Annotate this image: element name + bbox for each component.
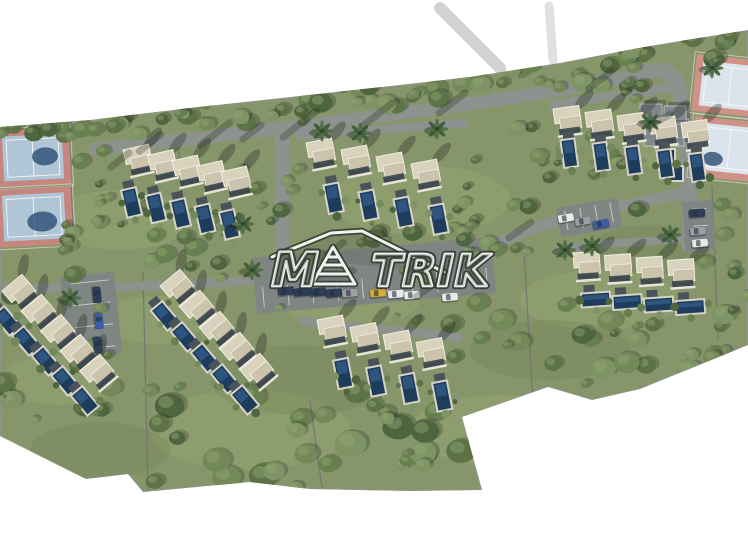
tree-highlight: [101, 108, 111, 116]
tree-canopy: [330, 74, 353, 93]
palm-crown: [435, 127, 439, 131]
tree-highlight: [64, 238, 69, 242]
tree-highlight: [54, 109, 63, 116]
tree-highlight: [151, 417, 161, 425]
car-windshield: [346, 290, 351, 296]
tree: [330, 72, 357, 93]
tree-highlight: [159, 396, 174, 408]
tree-highlight: [200, 96, 208, 103]
car: [325, 288, 343, 299]
tree-highlight: [631, 96, 636, 100]
tree-highlight: [96, 201, 100, 204]
tree-highlight: [574, 75, 585, 84]
tree: [717, 369, 736, 384]
tree-highlight: [201, 119, 209, 125]
car-windshield: [95, 341, 101, 346]
palm-crown: [668, 233, 672, 237]
tree-highlight: [448, 352, 456, 358]
pool-water-highlight: [627, 148, 638, 161]
tree-highlight: [532, 151, 541, 158]
tree-highlight: [59, 247, 65, 252]
tree-highlight: [175, 111, 180, 115]
tree-highlight: [728, 262, 734, 267]
tree-highlight: [333, 76, 344, 85]
car-windshield: [330, 290, 335, 296]
tree-shadow: [190, 94, 208, 107]
site-plan-rendering: M M TRIK TRIK: [0, 0, 748, 540]
tree-highlight: [628, 64, 635, 69]
tree-highlight: [630, 203, 639, 210]
tree-highlight: [267, 112, 273, 117]
grass-patch: [30, 422, 170, 478]
tree-highlight: [368, 401, 376, 407]
tree-highlight: [679, 362, 692, 372]
tree: [52, 106, 74, 123]
car-windshield: [96, 317, 102, 322]
car-windshield: [696, 240, 701, 246]
tree-highlight: [157, 115, 164, 120]
car: [691, 238, 709, 249]
tree-highlight: [290, 483, 297, 489]
logo-text: M M TRIK TRIK: [265, 243, 495, 297]
tree-highlight: [7, 121, 15, 128]
tree-highlight: [455, 77, 466, 86]
tree-highlight: [681, 32, 689, 38]
tree-highlight: [287, 187, 293, 192]
tree-highlight: [458, 235, 466, 241]
tree-highlight: [105, 194, 111, 198]
tree-highlight: [469, 296, 480, 305]
offsite-road-top: [549, 6, 553, 60]
tree-highlight: [729, 307, 734, 311]
tree-highlight: [686, 350, 693, 356]
tree-highlight: [148, 476, 157, 483]
tree-highlight: [508, 201, 515, 207]
tree-highlight: [276, 305, 280, 308]
tree-highlight: [554, 160, 558, 163]
tree-highlight: [133, 129, 141, 135]
tree-highlight: [473, 78, 483, 86]
tree-highlight: [594, 360, 607, 370]
tree-highlight: [582, 381, 587, 385]
tree-highlight: [171, 433, 179, 440]
tree-highlight: [625, 78, 630, 82]
tree-highlight: [403, 451, 408, 455]
tree-highlight: [275, 205, 284, 212]
pool-water-highlight: [563, 141, 574, 154]
tree-canopy: [680, 402, 688, 409]
tree-highlight: [297, 446, 309, 455]
tree-canopy: [625, 32, 641, 45]
tree: [340, 79, 354, 90]
tree-highlight: [89, 125, 97, 131]
tree-highlight: [26, 128, 33, 134]
tree-highlight: [409, 90, 415, 94]
tree: [625, 30, 644, 45]
tree-highlight: [149, 230, 157, 237]
tree-canopy: [523, 58, 541, 73]
car-windshield: [693, 210, 698, 216]
tree: [344, 79, 359, 91]
car-windshield: [94, 291, 100, 296]
tree-highlight: [647, 319, 655, 325]
tree-highlight: [96, 182, 100, 185]
tree-highlight: [589, 170, 595, 175]
tree-highlight: [431, 92, 442, 101]
tree-canopy: [344, 81, 356, 91]
tree-highlight: [108, 121, 117, 128]
tree-highlight: [724, 210, 733, 217]
tree-highlight: [629, 333, 639, 341]
tree-highlight: [554, 83, 561, 88]
tree-shadow: [343, 79, 354, 88]
tree-highlight: [417, 460, 425, 466]
tree-highlight: [636, 81, 644, 87]
tree-highlight: [535, 78, 540, 82]
palm-crown: [590, 244, 594, 248]
tree-shadow: [333, 72, 357, 90]
tree-highlight: [74, 123, 84, 131]
palm-crown: [241, 222, 245, 226]
tree-highlight: [544, 173, 551, 179]
tree-highlight: [603, 59, 613, 67]
tree-highlight: [361, 80, 371, 88]
tree-highlight: [293, 411, 304, 420]
tree: [680, 400, 691, 409]
tree-highlight: [206, 451, 220, 462]
tree-highlight: [258, 204, 262, 207]
tree-highlight: [625, 43, 635, 51]
tree-highlight: [498, 79, 504, 84]
tree-highlight: [472, 157, 477, 161]
tree-highlight: [338, 433, 354, 446]
tree-highlight: [346, 82, 352, 87]
tree-highlight: [715, 307, 726, 316]
car: [92, 336, 103, 354]
tree-highlight: [681, 403, 685, 406]
palm-crown: [320, 129, 324, 133]
tree-highlight: [687, 35, 696, 42]
tree-highlight: [466, 222, 472, 227]
tree-highlight: [627, 33, 635, 39]
pool-water-highlight: [595, 145, 606, 158]
tree-highlight: [382, 414, 389, 420]
tree-canopy: [472, 69, 484, 79]
tree-highlight: [341, 82, 346, 86]
car: [91, 286, 102, 304]
tree-highlight: [473, 57, 480, 63]
palm-crown: [358, 131, 362, 135]
tree-highlight: [266, 464, 277, 473]
tree-highlight: [458, 198, 465, 204]
pool-water-highlight: [691, 155, 702, 168]
tree-highlight: [316, 409, 325, 417]
tree-highlight: [30, 417, 35, 421]
tree-highlight: [74, 156, 83, 163]
tree-highlight: [301, 94, 310, 102]
tree-highlight: [98, 147, 105, 152]
tree-highlight: [705, 352, 714, 359]
tree-highlight: [481, 238, 490, 245]
tree-highlight: [450, 442, 465, 454]
tree-highlight: [559, 300, 567, 306]
tree-canopy: [359, 79, 379, 95]
tree-highlight: [42, 123, 51, 130]
tree-highlight: [525, 60, 534, 67]
tree-highlight: [741, 292, 748, 298]
car: [93, 312, 104, 330]
tree-highlight: [66, 269, 76, 277]
tree-highlight: [474, 70, 480, 75]
tree-highlight: [725, 31, 732, 36]
tree-highlight: [95, 304, 102, 310]
palm-crown: [250, 268, 254, 272]
tree-highlight: [522, 249, 527, 253]
tree-highlight: [212, 258, 220, 265]
tree-highlight: [62, 222, 67, 226]
aerial-scene: M M TRIK TRIK: [0, 0, 748, 540]
tree-highlight: [454, 206, 459, 210]
tree-highlight: [251, 184, 258, 190]
tree-highlight: [118, 222, 122, 225]
offsite-roads: [440, 6, 553, 68]
tree-highlight: [633, 324, 637, 328]
tree-highlight: [267, 218, 272, 222]
tree-highlight: [492, 312, 505, 322]
tree-shadow: [55, 106, 74, 121]
tree-shadow: [202, 97, 215, 107]
car: [688, 208, 706, 219]
car: [341, 288, 359, 299]
logo-trik: TRIK: [366, 246, 496, 296]
tree-highlight: [352, 99, 358, 104]
tree-canopy: [340, 81, 351, 90]
tree-shadow: [720, 369, 737, 382]
tree-highlight: [289, 424, 298, 431]
tree-highlight: [611, 331, 615, 335]
tree-highlight: [321, 458, 331, 466]
tree-highlight: [157, 248, 167, 256]
tree-highlight: [186, 263, 192, 268]
tree-highlight: [503, 342, 508, 346]
car: [689, 226, 707, 237]
tree-highlight: [511, 245, 517, 250]
tree-highlight: [617, 354, 630, 364]
tree-highlight: [414, 422, 428, 433]
tree-highlight: [144, 386, 151, 392]
tree-highlight: [511, 123, 520, 130]
tree-highlight: [392, 315, 395, 318]
palm-crown: [710, 66, 714, 70]
pool-water-highlight: [659, 152, 670, 165]
palm-crown: [563, 248, 567, 252]
tree-shadow: [475, 67, 487, 76]
tree-canopy: [52, 107, 70, 122]
tree-highlight: [312, 95, 324, 105]
tree-shadow: [201, 93, 218, 106]
tree-canopy: [717, 371, 733, 384]
tree-shadow: [347, 79, 359, 88]
tree-highlight: [233, 111, 242, 118]
tree-highlight: [715, 201, 722, 207]
tree-highlight: [144, 256, 153, 263]
tree-highlight: [546, 358, 555, 365]
offsite-road-north: [440, 8, 500, 68]
tree-highlight: [175, 384, 180, 388]
tree-highlight: [729, 269, 736, 275]
tree-highlight: [66, 133, 72, 138]
tree-canopy: [198, 95, 214, 108]
tree-highlight: [190, 98, 198, 105]
tree-highlight: [574, 328, 585, 337]
tree-highlight: [201, 100, 207, 105]
tree-highlight: [282, 177, 288, 182]
tree-shadow: [683, 400, 692, 407]
palm-crown: [68, 296, 72, 300]
tree-highlight: [475, 334, 482, 340]
tree-highlight: [294, 166, 300, 171]
tree-highlight: [717, 229, 725, 236]
tree-highlight: [464, 184, 468, 188]
car-windshield: [694, 228, 699, 234]
tree-highlight: [601, 313, 613, 322]
tree-highlight: [92, 217, 98, 221]
tree-highlight: [296, 107, 304, 113]
tree-highlight: [217, 275, 222, 279]
tree-shadow: [627, 30, 644, 43]
tree-highlight: [641, 50, 648, 55]
tree-highlight: [620, 42, 631, 51]
tree-highlight: [719, 372, 727, 378]
